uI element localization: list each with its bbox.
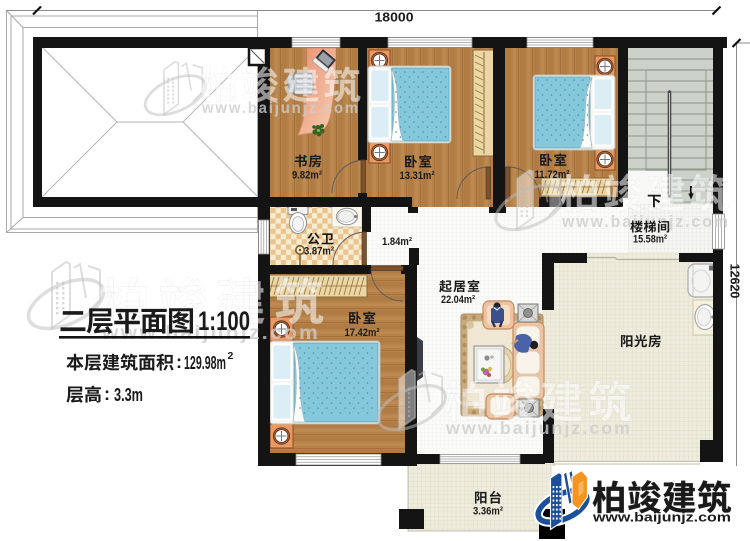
svg-text:18000: 18000 [375, 10, 414, 25]
svg-text::: : [176, 352, 182, 372]
svg-text:2: 2 [228, 350, 234, 362]
svg-text:22.04m²: 22.04m² [441, 294, 475, 306]
svg-text::: : [104, 384, 110, 404]
svg-text:3.36m²: 3.36m² [473, 506, 503, 518]
svg-text:1:100: 1:100 [198, 306, 250, 336]
svg-text:3.3m: 3.3m [114, 385, 143, 405]
svg-text:www.baijunjz.com: www.baijunjz.com [201, 100, 360, 117]
svg-text:13.31m²: 13.31m² [400, 170, 435, 182]
svg-text:9.82m²: 9.82m² [292, 170, 322, 182]
svg-text:1.84m²: 1.84m² [382, 236, 412, 248]
svg-text:www.baijunjz.com: www.baijunjz.com [561, 213, 730, 231]
svg-text:17.42m²: 17.42m² [345, 327, 380, 339]
svg-text:12620: 12620 [728, 264, 742, 299]
svg-text:11.72m²: 11.72m² [535, 169, 570, 181]
svg-text:15.58m²: 15.58m² [633, 234, 667, 246]
svg-text:www.baijunjz.com: www.baijunjz.com [592, 511, 731, 525]
svg-text:www.baijunjz.com: www.baijunjz.com [445, 418, 632, 438]
svg-text:129.98m: 129.98m [184, 353, 226, 373]
svg-text:3.87m²: 3.87m² [304, 246, 334, 258]
